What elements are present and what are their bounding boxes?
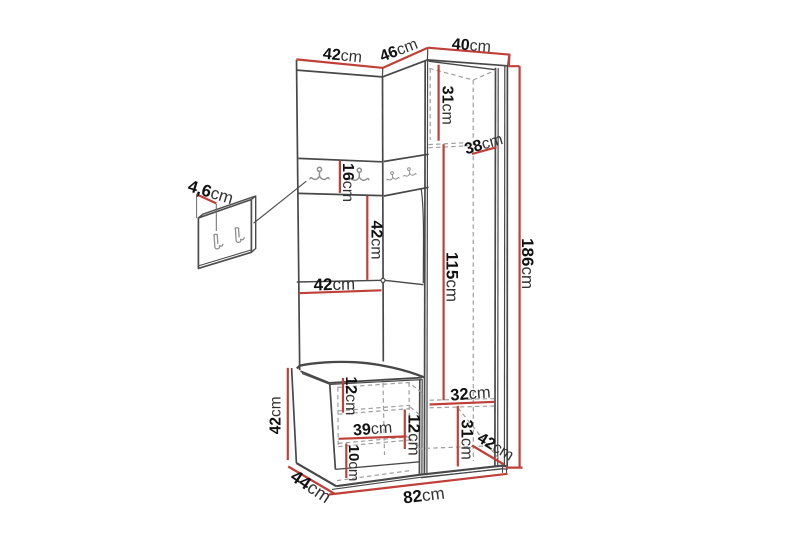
svg-text:32cm: 32cm [450, 383, 492, 404]
svg-text:42cm: 42cm [368, 220, 385, 259]
svg-text:12cm: 12cm [405, 414, 424, 456]
svg-text:16cm: 16cm [339, 163, 356, 202]
svg-text:186cm: 186cm [518, 238, 537, 289]
svg-text:31cm: 31cm [458, 420, 476, 460]
svg-text:10cm: 10cm [345, 445, 362, 482]
svg-text:40cm: 40cm [451, 36, 491, 56]
svg-text:31cm: 31cm [438, 86, 455, 125]
svg-text:12cm: 12cm [342, 376, 359, 415]
svg-text:42cm: 42cm [313, 274, 355, 294]
svg-text:42cm: 42cm [268, 396, 285, 434]
svg-text:39cm: 39cm [352, 420, 392, 440]
svg-text:115cm: 115cm [443, 252, 462, 302]
